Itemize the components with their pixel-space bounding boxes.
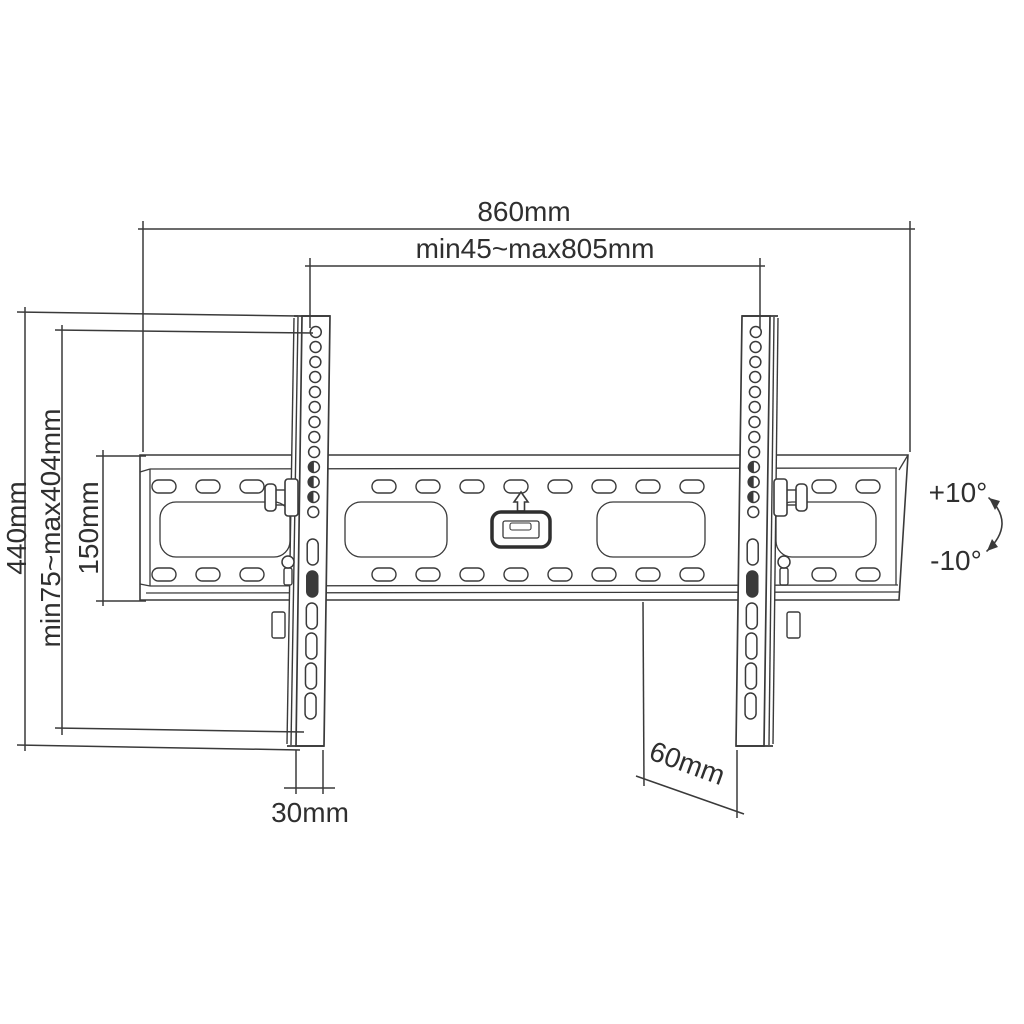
tilt-knob-outer [796, 484, 807, 511]
bracket-slot [745, 663, 756, 689]
dim-label-vesa-range: min75~max404mm [35, 409, 66, 648]
bracket-hole [309, 417, 320, 428]
bracket-hole [310, 327, 321, 338]
bracket-hole [749, 417, 760, 428]
plate-slot [548, 568, 572, 581]
mount-dimension-diagram: 860mm min45~max805mm 440mm min75~max404m… [0, 0, 1024, 1024]
dim-label-440: 440mm [1, 481, 32, 574]
lock-screw-stem [284, 568, 292, 585]
bracket-hole [749, 402, 760, 413]
plate-slot [152, 480, 176, 493]
bracket-slot [306, 633, 317, 659]
bracket-slot [746, 603, 757, 629]
bracket-hole [749, 447, 760, 458]
plate-slot [196, 568, 220, 581]
plate-slot [592, 480, 616, 493]
bracket-slot [305, 663, 316, 689]
plate-slot [636, 568, 660, 581]
tilt-label-up: +10° [929, 477, 988, 508]
tilt-knob-outer [265, 484, 276, 511]
bracket-hole [750, 357, 761, 368]
plate-slot [416, 568, 440, 581]
level-indicator [492, 512, 550, 547]
dim-label-150: 150mm [73, 481, 104, 574]
plate-slot [812, 568, 836, 581]
bracket-hole [749, 432, 760, 443]
tilt-annotation: +10° -10° [929, 477, 1002, 576]
plate-slot [504, 568, 528, 581]
plate-slot [636, 480, 660, 493]
dim-60-ext-left [643, 602, 644, 786]
dim-label-30: 30mm [271, 797, 349, 828]
plate-slot [416, 480, 440, 493]
plate-slot [372, 568, 396, 581]
bracket-hole [749, 387, 760, 398]
dim-label-60: 60mm [645, 735, 729, 791]
plate-slot [680, 480, 704, 493]
bracket-hole [309, 447, 320, 458]
bracket-hole [310, 372, 321, 383]
dim-label-range-width: min45~max805mm [416, 233, 655, 264]
bracket-hole [310, 342, 321, 353]
bracket-slot [307, 571, 318, 597]
plate-slot [240, 480, 264, 493]
bracket-slot [306, 603, 317, 629]
bracket-slot [746, 633, 757, 659]
dimension-wall-clearance: 60mm [636, 735, 744, 818]
plate-slot [856, 568, 880, 581]
dimension-horizontal-adjustment: min45~max805mm [305, 233, 765, 328]
dimension-plate-height: 150mm [73, 450, 146, 606]
plate-slot [680, 568, 704, 581]
bracket-hole [309, 402, 320, 413]
bracket-slot [307, 539, 318, 565]
plate-slot [372, 480, 396, 493]
dimension-bracket-width: 30mm [271, 750, 349, 828]
bracket-hole [310, 357, 321, 368]
bracket-hole [750, 327, 761, 338]
plate-slot [196, 480, 220, 493]
plate-slot [504, 480, 528, 493]
bracket-slot [305, 693, 316, 719]
bracket-slot [747, 539, 758, 565]
plate-slot [856, 480, 880, 493]
bracket-slot [747, 571, 758, 597]
tilt-knob-inner [774, 479, 787, 516]
bracket-hole [748, 507, 759, 518]
plate-slot [460, 568, 484, 581]
bracket-hook [787, 612, 800, 638]
lock-screw-head [282, 556, 294, 568]
tilt-arc-arrow-icon [987, 498, 1002, 551]
bracket-hole [309, 387, 320, 398]
bracket-hook [272, 612, 285, 638]
plate-slot [460, 480, 484, 493]
bracket-hole [750, 342, 761, 353]
lock-screw-stem [780, 568, 788, 585]
wall-plate [140, 455, 908, 600]
bracket-hole [750, 372, 761, 383]
plate-slot [152, 568, 176, 581]
lock-screw-head [778, 556, 790, 568]
plate-slot [548, 480, 572, 493]
tilt-label-down: -10° [930, 545, 982, 576]
plate-slot [592, 568, 616, 581]
dim-label-860: 860mm [477, 196, 570, 227]
bracket-hole [308, 507, 319, 518]
bracket-hole [309, 432, 320, 443]
plate-slot [240, 568, 264, 581]
tilt-knob-inner [285, 479, 298, 516]
bracket-slot [745, 693, 756, 719]
plate-slot [812, 480, 836, 493]
